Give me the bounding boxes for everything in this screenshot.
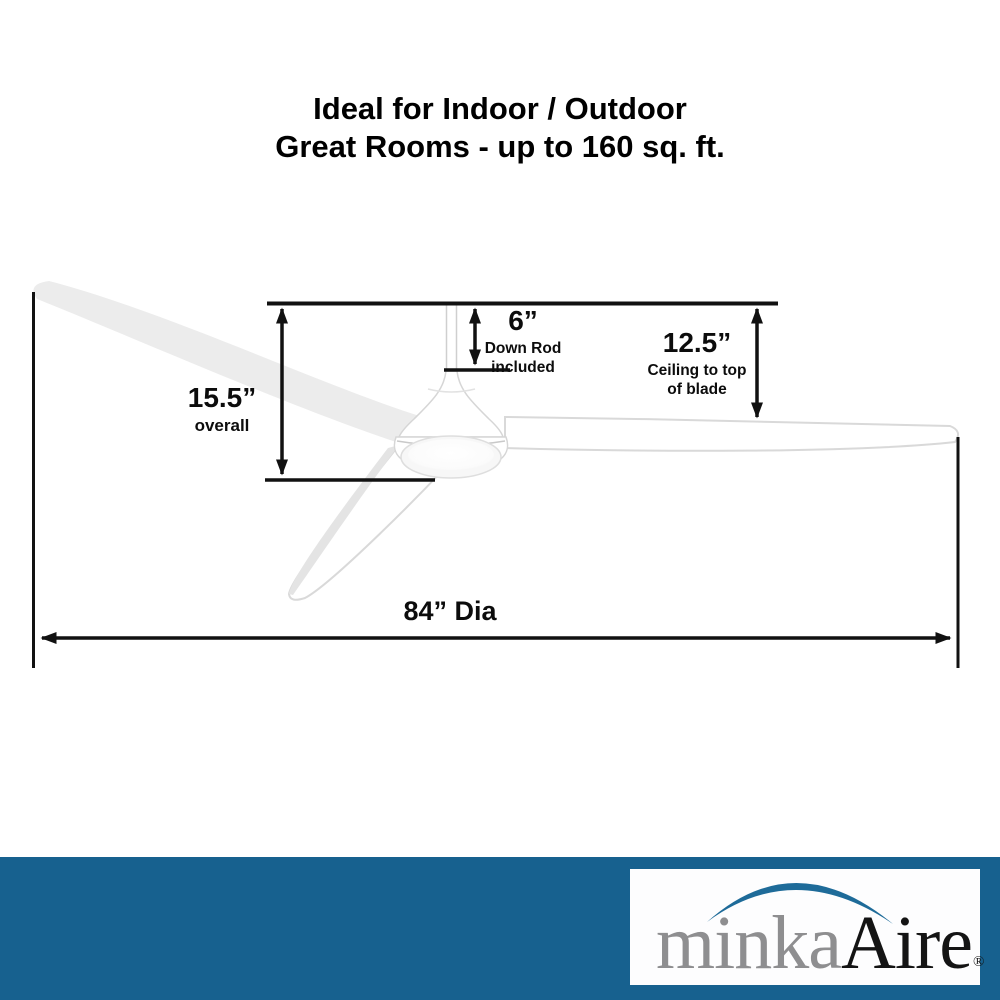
downrod-value: 6”: [463, 306, 583, 336]
product-dimension-diagram: Ideal for Indoor / Outdoor Great Rooms -…: [0, 0, 1000, 1000]
minka-aire-logo: minkaAire®: [630, 869, 980, 985]
downrod-label-line2: included: [463, 358, 583, 377]
brand-band: minkaAire®: [0, 857, 1000, 1000]
diameter-value: 84” Dia: [403, 596, 496, 626]
fan-downrod: [447, 303, 457, 373]
ceiling-to-blade-label-line1: Ceiling to top: [627, 361, 767, 380]
ceiling-fan-illustration: [0, 0, 1000, 1000]
dimension-overall-height: 15.5” overall: [152, 383, 292, 435]
motor-bell: [399, 371, 503, 437]
dimension-ceiling-to-blade: 12.5” Ceiling to top of blade: [627, 328, 767, 399]
registered-trademark-symbol: ®: [973, 954, 984, 970]
dimension-diameter: 84” Dia: [350, 596, 550, 627]
overall-height-value: 15.5”: [152, 383, 292, 413]
logo-brand-aire: Aire: [841, 901, 972, 985]
ceiling-to-blade-label-line2: of blade: [627, 380, 767, 399]
ceiling-to-blade-value: 12.5”: [627, 328, 767, 358]
logo-wordmark: minkaAire®: [656, 905, 983, 981]
logo-brand-minka: minka: [656, 901, 841, 985]
dimension-downrod: 6” Down Rod included: [463, 306, 583, 377]
downrod-label-line1: Down Rod: [463, 339, 583, 358]
overall-height-label: overall: [152, 416, 292, 435]
fan-blade-right: [505, 417, 958, 451]
light-lens: [408, 439, 494, 471]
